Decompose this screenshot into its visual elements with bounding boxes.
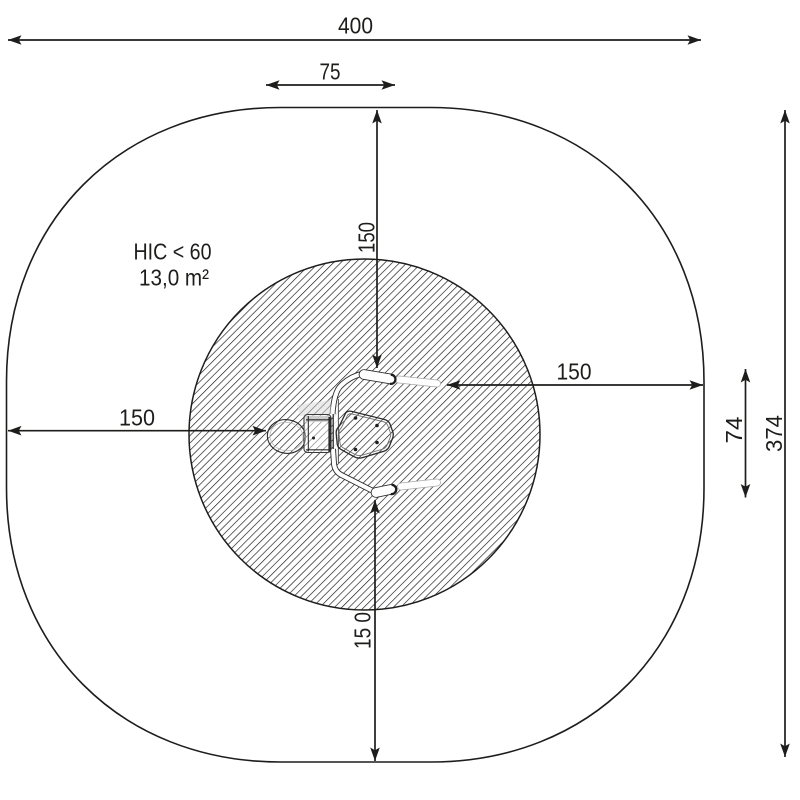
svg-text:400: 400 bbox=[338, 13, 373, 39]
svg-text:13,0 m²: 13,0 m² bbox=[139, 265, 209, 291]
svg-text:150: 150 bbox=[557, 359, 592, 385]
svg-text:15 0: 15 0 bbox=[350, 612, 376, 649]
svg-text:150: 150 bbox=[354, 222, 380, 253]
svg-text:74: 74 bbox=[721, 416, 747, 443]
svg-text:150: 150 bbox=[119, 405, 155, 431]
svg-text:HIC < 60: HIC < 60 bbox=[134, 239, 212, 265]
svg-text:75: 75 bbox=[320, 59, 341, 85]
svg-text:374: 374 bbox=[761, 415, 787, 452]
